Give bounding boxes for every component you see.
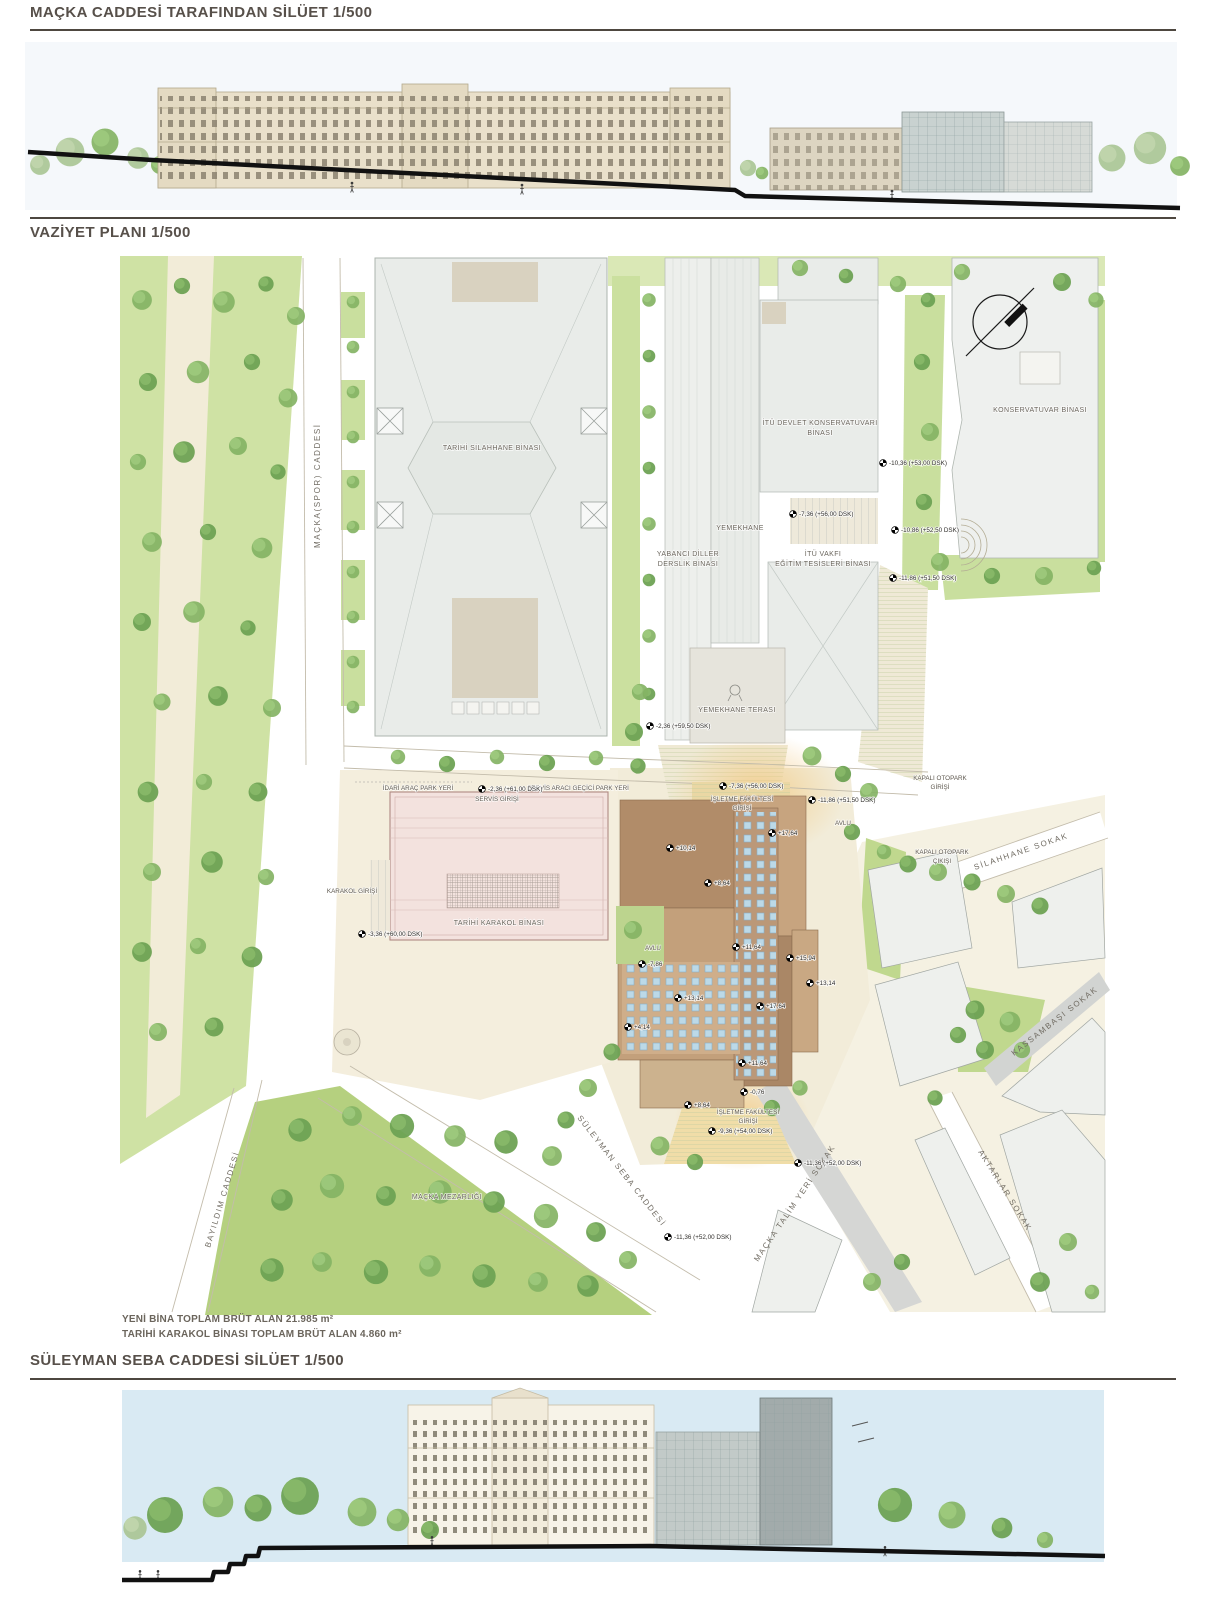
elevation-marker: -2,36 (+61,00 DSK) [479,786,543,794]
svg-text:-11,36 (+52,00 DSK): -11,36 (+52,00 DSK) [804,1160,861,1167]
street-macka-spor: MAÇKA(SPOR) CADDESİ [313,423,322,548]
elevation-marker: +17,64 [769,830,798,838]
svg-text:EĞİTİM TESİSLERİ BİNASI: EĞİTİM TESİSLERİ BİNASI [775,559,871,568]
svg-text:-9,36 (+54,00 DSK): -9,36 (+54,00 DSK) [718,1128,772,1135]
svg-text:+17,64: +17,64 [778,830,798,837]
isletme-giris-north-label: İŞLETME FAKÜLTESİ [711,794,773,803]
isletme-giris-south-label: İŞLETME FAKÜLTESİ [717,1107,779,1116]
elevation-marker: -11,36 (+52,00 DSK) [665,1234,732,1242]
bottom-silhouette-title: SÜLEYMAN SEBA CADDESİ SİLÜET 1/500 [30,1352,344,1369]
svg-text:+13,14: +13,14 [684,995,704,1002]
svg-text:GİRİŞİ: GİRİŞİ [739,1116,758,1125]
elevation-marker: -11,86 (+51,50 DSK) [890,575,957,583]
svg-text:+4,14: +4,14 [634,1024,650,1031]
avlu-label: AVLU [645,945,661,952]
elevation-marker: -10,86 (+52,50 DSK) [892,527,959,535]
site-plan-drawing: TARİHİ SİLAHHANE BİNASI YABANCI DİLLER D… [120,256,1110,1315]
elevation-marker: +11,64 [739,1060,768,1068]
site-plan-title: VAZİYET PLANI 1/500 [30,224,191,241]
svg-text:-11,86 (+51,50 DSK): -11,86 (+51,50 DSK) [899,575,956,582]
svg-text:+11,64: +11,64 [742,944,761,951]
elevation-marker: -3,36 (+60,00 DSK) [359,931,423,939]
area-note-line1: YENİ BİNA TOPLAM BRÜT ALAN 21.985 m² [122,1312,402,1327]
svg-text:+15,94: +15,94 [796,955,816,962]
elevation-marker: -7,36 (+56,00 DSK) [720,783,784,791]
servis-giris-label: SERVİS GİRİŞİ [475,794,519,803]
classical-facade [158,84,730,188]
vakfi-label: İTÜ VAKFI [805,549,842,558]
top-silhouette-drawing [25,42,1190,210]
elevation-marker: -7,36 (+56,00 DSK) [790,511,854,519]
otopark-cikis-label: KAPALI OTOPARK [915,849,969,856]
elevation-marker: -2,36 (+59,50 DSK) [647,723,711,731]
svg-text:+10,14: +10,14 [676,845,696,852]
itu-konservatuvari-building [760,258,878,492]
elevation-marker: -11,36 (+52,00 DSK) [795,1160,862,1168]
konservatuvar-label: KONSERVATUVAR BİNASI [993,405,1087,414]
svg-text:ÇIKIŞI: ÇIKIŞI [933,858,951,865]
elevation-marker: +17,64 [757,1003,786,1011]
svg-text:DERSLİK BİNASI: DERSLİK BİNASI [658,559,718,568]
karakol-label: TARİHİ KARAKOL BİNASI [454,918,544,927]
svg-text:+11,64: +11,64 [748,1060,767,1067]
bottom-title-rule [30,1378,1176,1380]
elevation-marker: -10,36 (+53,00 DSK) [880,460,947,468]
bottom-silhouette-drawing [122,1388,1105,1580]
elevation-marker: +13,14 [675,995,704,1003]
elevation-marker: -9,36 (+54,00 DSK) [709,1128,773,1136]
elevation-marker: +4,14 [625,1024,651,1032]
silahhane-building [375,258,607,736]
yemekhane-building [711,258,759,643]
svg-text:-10,36 (+53,00 DSK): -10,36 (+53,00 DSK) [889,460,947,467]
idari-park-label: İDARİ ARAÇ PARK YERİ [383,783,454,792]
svg-text:-7,36 (+56,00 DSK): -7,36 (+56,00 DSK) [729,783,783,790]
svg-text:BİNASI: BİNASI [807,428,832,437]
konservatuvari-label: İTÜ DEVLET KONSERVATUVARI [762,418,877,427]
plan-section-rule [30,217,1176,219]
yabanci-label: YABANCI DİLLER [657,549,719,558]
elevation-marker: +8,64 [685,1102,711,1110]
elevation-marker: -0,76 [741,1089,765,1097]
svg-text:-10,86 (+52,50 DSK): -10,86 (+52,50 DSK) [901,527,959,534]
svg-text:-0,76: -0,76 [750,1089,765,1096]
svg-text:+17,64: +17,64 [766,1003,786,1010]
svg-text:-7,36 (+56,00 DSK): -7,36 (+56,00 DSK) [799,511,853,518]
elevation-marker: +10,14 [667,845,696,853]
avlu-label-2: AVLU [835,820,851,827]
svg-text:-2,36 (+59,50 DSK): -2,36 (+59,50 DSK) [656,723,710,730]
elevation-marker: +13,14 [807,980,836,988]
karakol-building [370,792,608,940]
yemekhane-label: YEMEKHANE [716,525,764,532]
elevation-marker: -11,86 (+51,50 DSK) [809,797,876,805]
otopark-giris-label: KAPALI OTOPARK [913,775,967,782]
top-title-rule [30,29,1176,31]
area-note-line2: TARİHİ KARAKOL BİNASI TOPLAM BRÜT ALAN 4… [122,1327,402,1342]
elevation-marker: +11,64 [733,944,762,952]
svg-text:-3,36 (+60,00 DSK): -3,36 (+60,00 DSK) [368,931,422,938]
terasi-label: YEMEKHANE TERASI [698,707,775,714]
svg-text:-7,86: -7,86 [648,961,663,968]
top-silhouette-title: MAÇKA CADDESİ TARAFINDAN SİLÜET 1/500 [30,4,372,21]
svg-text:-11,86 (+51,50 DSK): -11,86 (+51,50 DSK) [818,797,875,804]
elevation-marker: +15,94 [787,955,816,963]
elevation-marker: -7,86 [639,961,663,969]
karakol-giris-label: KARAKOL GİRİŞİ [327,886,377,895]
architectural-presentation-board: { "titles": { "top": "MAÇKA CADDESİ TARA… [0,0,1225,1600]
area-notes: YENİ BİNA TOPLAM BRÜT ALAN 21.985 m² TAR… [122,1312,402,1342]
classical-palace [408,1388,654,1545]
silahhane-label: TARİHİ SİLAHHANE BİNASI [443,443,541,452]
svg-text:+8,64: +8,64 [714,880,730,887]
svg-text:-11,36 (+52,00 DSK): -11,36 (+52,00 DSK) [674,1234,731,1241]
svg-text:+8,64: +8,64 [694,1102,710,1109]
svg-text:-2,36 (+61,00 DSK): -2,36 (+61,00 DSK) [488,786,542,793]
mezarlik-label: MAÇKA MEZARLIĞI [412,1192,482,1201]
svg-text:GİRİŞİ: GİRİŞİ [931,782,950,791]
elevation-marker: +8,64 [705,880,731,888]
svg-text:+13,14: +13,14 [816,980,836,987]
svg-text:GİRİŞİ: GİRİŞİ [733,803,752,812]
